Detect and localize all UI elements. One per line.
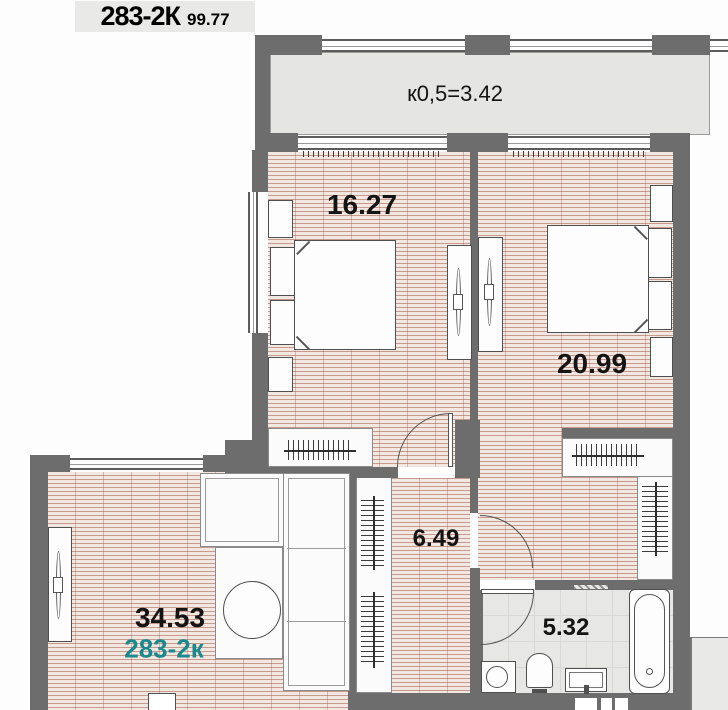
wall-hall-bedroom2 (470, 568, 480, 590)
wardrobe-handle-grip (453, 294, 463, 310)
wall-bottom (348, 693, 690, 710)
window-balcony (510, 39, 652, 52)
hanger-rail (642, 486, 668, 552)
balcony-coef-label: к0,5=3.42 (407, 81, 503, 107)
pillow (270, 247, 295, 296)
radiator (513, 151, 646, 157)
pillow (270, 300, 295, 345)
window-balcony (322, 39, 465, 52)
wall-left (30, 455, 48, 710)
radiator (303, 151, 443, 157)
bed-double (547, 225, 649, 333)
bathtub-drain (646, 668, 653, 675)
wardrobe-handle-grip (53, 577, 63, 593)
entry-gap (148, 693, 176, 710)
wall-living-top (203, 455, 268, 472)
floor-plan-canvas: 283-2К 99.77 (0, 0, 728, 710)
unit-total-area: 99.77 (187, 4, 230, 30)
plan-title-box: 283-2К 99.77 (75, 1, 255, 32)
wall-pier (652, 35, 710, 55)
pillow (648, 228, 672, 278)
nightstand (268, 357, 293, 392)
room-area-label-bathroom: 5.32 (543, 614, 590, 642)
door-opening-bedroom2 (470, 513, 478, 568)
wall-pier (465, 35, 510, 55)
window-bedroom1 (298, 136, 447, 150)
toilet-base (532, 689, 547, 693)
wall-left-bedroom1 (252, 333, 268, 440)
room-area-label-bedroom2: 20.99 (557, 348, 627, 380)
hanger-rail (361, 596, 384, 664)
wall-left-bedroom1 (252, 150, 268, 192)
unit-code-label: 283-2к (124, 634, 204, 665)
unit-code-title: 283-2К (100, 1, 180, 32)
pillow (648, 281, 672, 330)
room-area-label-hallway: 6.49 (413, 525, 460, 553)
sofa-section (200, 473, 284, 547)
floor-hallway (392, 475, 470, 693)
wall-pier (255, 35, 322, 55)
nightstand (268, 200, 293, 238)
neighbor-area (690, 637, 728, 710)
duct-opening (601, 698, 612, 710)
sofa-section (283, 473, 350, 691)
room-area-label-bedroom1: 16.27 (327, 189, 397, 221)
door-opening-bedroom1 (398, 467, 453, 478)
bed-double (294, 240, 396, 350)
sink-tap (584, 685, 589, 694)
nightstand (650, 337, 673, 377)
nightstand (650, 185, 673, 222)
window-living (70, 458, 203, 470)
wall-walkin-top (562, 428, 683, 438)
round-table (223, 581, 281, 639)
duct-opening (615, 698, 628, 710)
wall-jog (455, 420, 480, 478)
hanger-rail (576, 444, 640, 466)
hanger-rail (288, 440, 352, 460)
toilet (526, 653, 553, 688)
window-bedroom2 (508, 136, 650, 150)
hanger-rail (361, 500, 384, 566)
window-balcony (710, 39, 728, 52)
wall-hall-bedroom2 (470, 478, 478, 513)
window-bedroom1-side (248, 192, 258, 333)
room-area-label-living: 34.53 (135, 602, 205, 634)
duct-opening (575, 698, 597, 710)
wardrobe-handle-grip (484, 284, 494, 300)
washing-machine-door (486, 666, 508, 688)
wall-right (673, 135, 690, 710)
towel-rail (573, 584, 609, 590)
